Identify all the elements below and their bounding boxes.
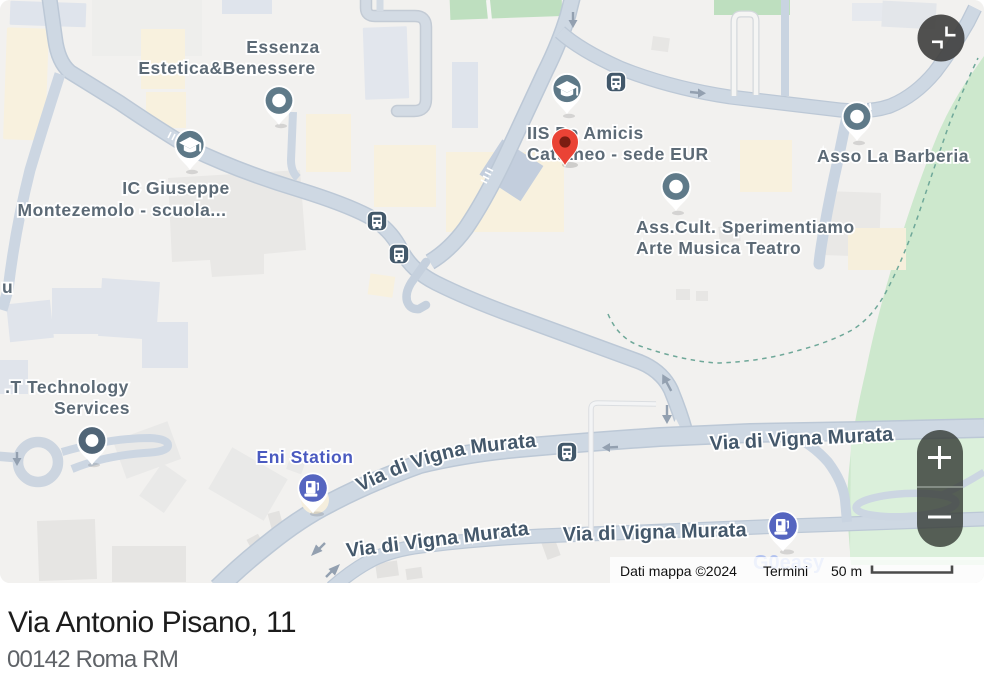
svg-text:Ass.Cult. Sperimentiamo: Ass.Cult. Sperimentiamo bbox=[636, 217, 855, 237]
svg-text:Arte Musica Teatro: Arte Musica Teatro bbox=[636, 238, 801, 258]
svg-text:Estetica&Benessere: Estetica&Benessere bbox=[138, 58, 315, 78]
svg-text:Asso La Barberia: Asso La Barberia bbox=[817, 146, 969, 166]
svg-text:.T Technology: .T Technology bbox=[5, 377, 129, 397]
svg-text:IIS De Amicis: IIS De Amicis bbox=[527, 123, 644, 143]
svg-text:Essenza: Essenza bbox=[246, 37, 320, 57]
svg-text:Montezemolo - scuola...: Montezemolo - scuola... bbox=[18, 200, 227, 220]
svg-text:Dati mappa ©2024: Dati mappa ©2024 bbox=[620, 563, 737, 579]
svg-text:Eni Station: Eni Station bbox=[257, 447, 354, 467]
svg-text:u: u bbox=[2, 277, 13, 297]
svg-text:Termini: Termini bbox=[763, 563, 808, 579]
svg-text:Services: Services bbox=[54, 398, 130, 418]
svg-text:IC Giuseppe: IC Giuseppe bbox=[122, 178, 230, 198]
svg-text:50 m: 50 m bbox=[831, 563, 862, 579]
